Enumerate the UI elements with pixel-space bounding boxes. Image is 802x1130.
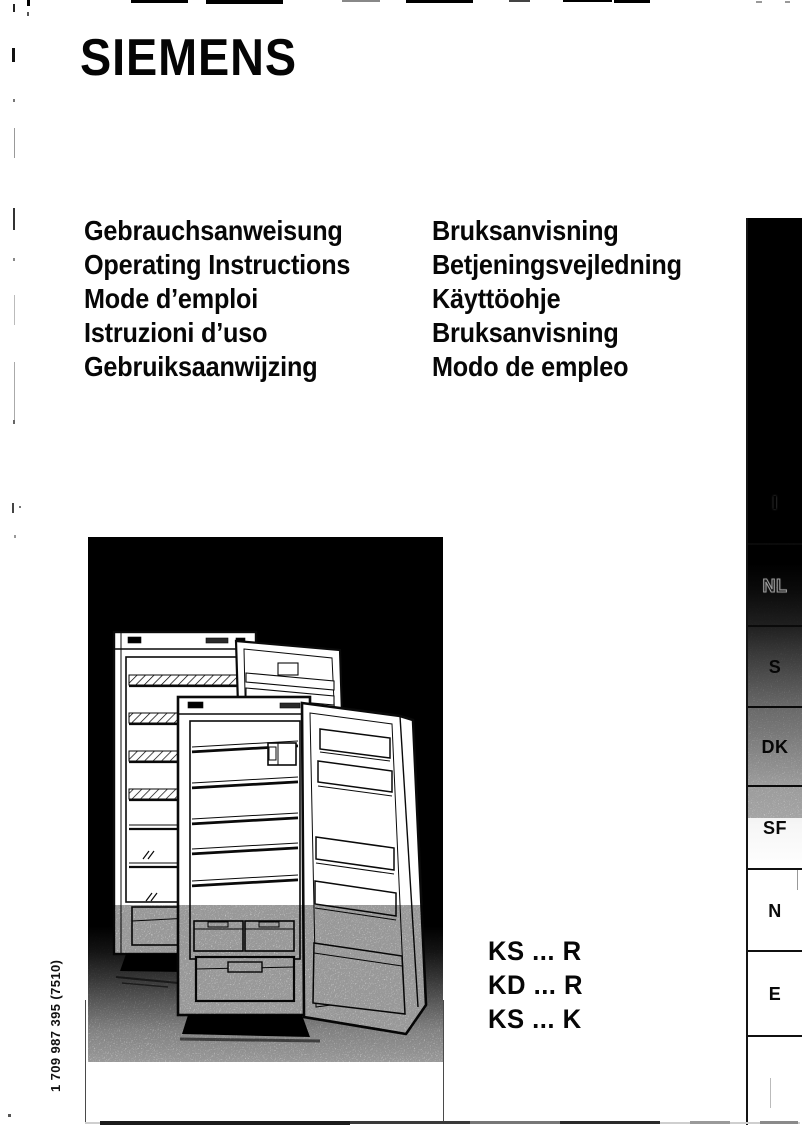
language-column-left: Gebrauchsanweisung Operating Instruction… — [84, 214, 350, 384]
model-ks-r: KS ... R — [488, 934, 583, 968]
headline-es: Modo de empleo — [432, 350, 682, 384]
siemens-logo: SIEMENS — [80, 28, 297, 88]
tab-nl: NL — [748, 543, 802, 627]
headline-no: Bruksanvisning — [432, 316, 682, 350]
tab-dk: DK — [748, 706, 802, 787]
headline-fr: Mode d’emploi — [84, 282, 350, 316]
language-tab-bar: I NL S DK SF N E — [746, 218, 802, 1125]
model-ks-k: KS ... K — [488, 1002, 583, 1036]
headline-en: Operating Instructions — [84, 248, 350, 282]
headline-nl: Gebruiksaanwijzing — [84, 350, 350, 384]
part-number: 1 709 987 395 (7510) — [48, 942, 70, 1092]
bottom-scan-bar — [85, 1120, 800, 1126]
model-list: KS ... R KD ... R KS ... K — [488, 934, 583, 1036]
scan-grain — [88, 905, 443, 1062]
headline-fi: Käyttöohje — [432, 282, 682, 316]
tab-sf: SF — [748, 785, 802, 870]
model-kd-r: KD ... R — [488, 968, 583, 1002]
tab-n: N — [748, 868, 802, 952]
headline-de: Gebrauchsanweisung — [84, 214, 350, 248]
refrigerators-illustration — [88, 537, 443, 1062]
language-column-right: Bruksanvisning Betjeningsvejledning Käyt… — [432, 214, 682, 384]
tab-s: S — [748, 625, 802, 708]
tab-e: E — [748, 950, 802, 1037]
headline-da: Betjeningsvejledning — [432, 248, 682, 282]
headline-it: Istruzioni d’uso — [84, 316, 350, 350]
manual-cover-page: SIEMENS Gebrauchsanweisung Operating Ins… — [0, 0, 802, 1130]
tab-blank — [748, 1035, 802, 1125]
headline-sv: Bruksanvisning — [432, 214, 682, 248]
tab-i: I — [748, 464, 802, 543]
